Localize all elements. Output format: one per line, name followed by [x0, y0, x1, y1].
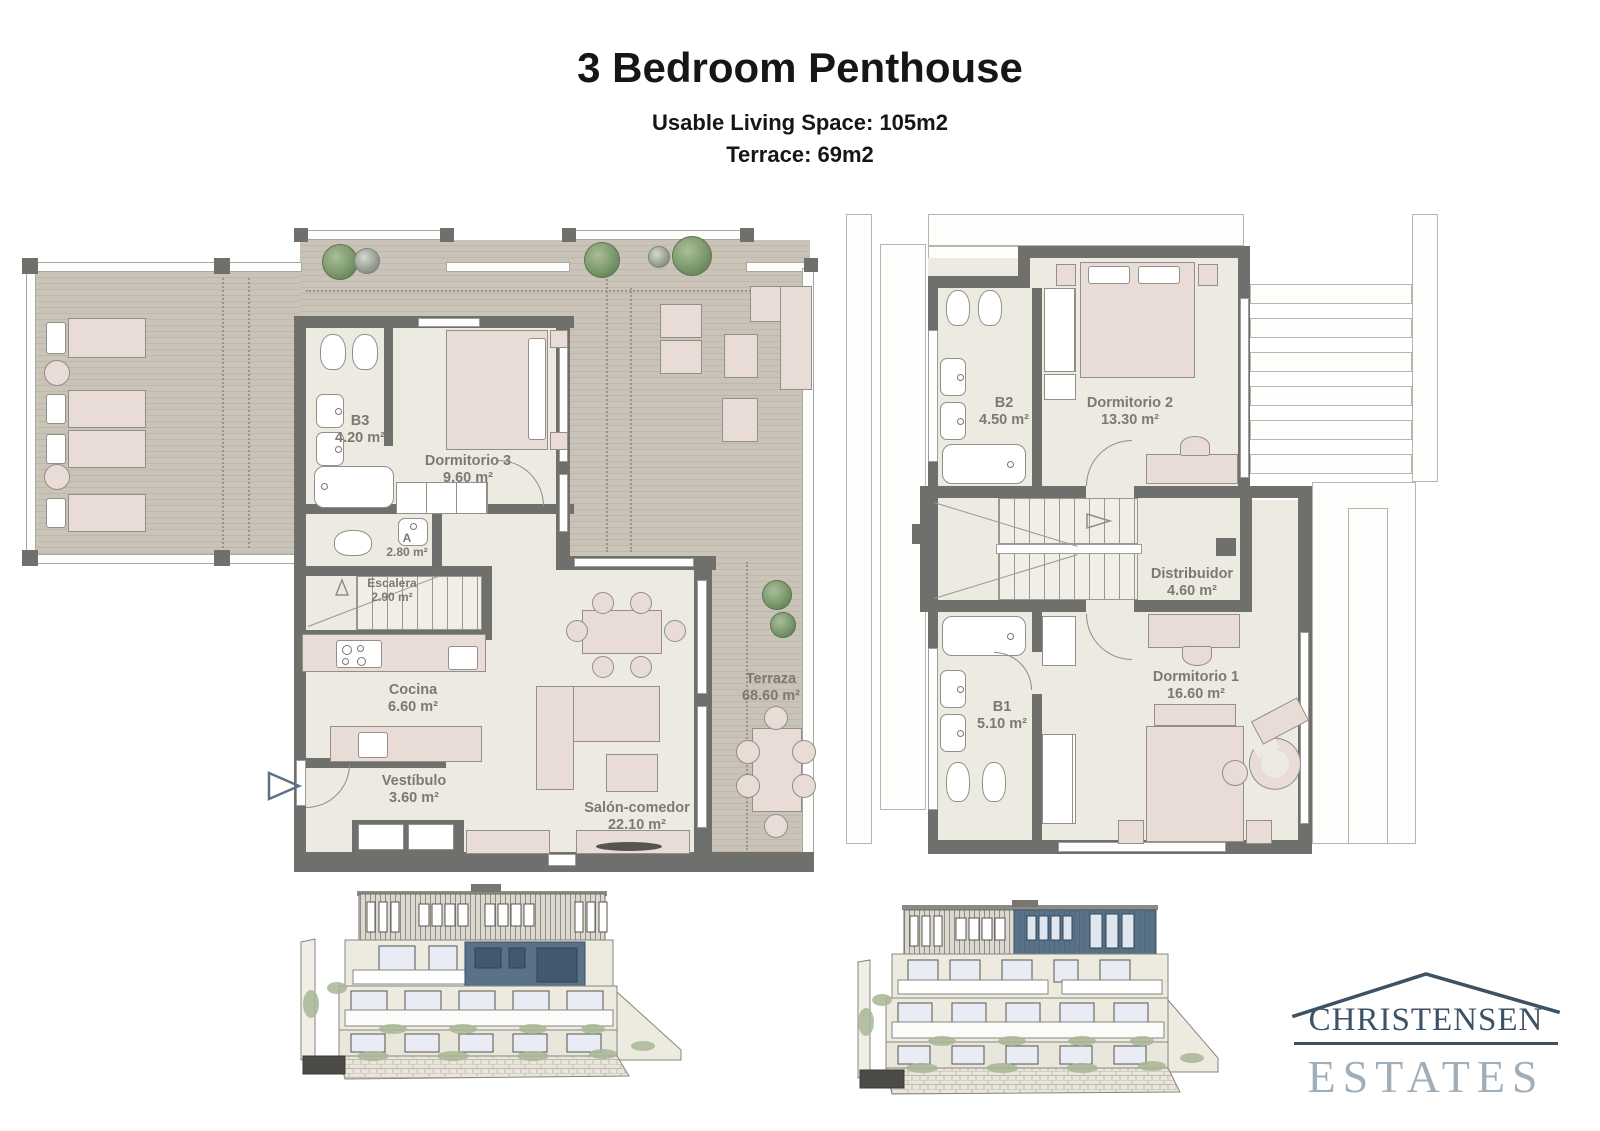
wall [920, 486, 1250, 498]
lounger-pillow [46, 394, 66, 424]
wall [482, 566, 492, 640]
room-label-b1: B15.10 m² [977, 699, 1027, 733]
sun-lounger [68, 494, 146, 532]
bathtub [942, 444, 1026, 484]
wall [920, 600, 1250, 612]
room-area: 2.90 m² [367, 590, 416, 604]
room-area: 4.60 m² [1151, 583, 1233, 600]
room-label-cocina: Cocina6.60 m² [388, 682, 438, 716]
wall [1032, 420, 1042, 486]
wall [1298, 486, 1312, 612]
wall [1018, 246, 1250, 258]
lounger-pillow [46, 434, 66, 464]
desk-chair [1180, 436, 1210, 456]
hob [336, 640, 382, 668]
deck-joint-line [630, 288, 632, 552]
room-area: 9.60 m² [425, 470, 511, 487]
outdoor-ottoman [722, 398, 758, 442]
bidet [352, 334, 378, 370]
window [697, 580, 707, 694]
bathtub [314, 466, 394, 508]
plant [648, 246, 670, 268]
wall [294, 852, 716, 872]
room-area: 6.60 m² [388, 699, 438, 716]
bidet [982, 762, 1006, 802]
balustrade [26, 262, 302, 272]
window [559, 474, 568, 532]
wall [294, 566, 492, 576]
nightstand [1198, 264, 1218, 286]
room-name: Vestíbulo [382, 773, 446, 790]
window [418, 318, 480, 327]
stair-landing [996, 544, 1142, 554]
deck-joint-line [746, 562, 748, 850]
door-opening [1032, 652, 1042, 694]
sink [940, 402, 966, 440]
side-table [1222, 760, 1248, 786]
chimney [1216, 538, 1236, 556]
nightstand [1118, 820, 1144, 844]
wall [706, 852, 814, 872]
balustrade [446, 262, 570, 272]
room-name: Dormitorio 2 [1087, 395, 1173, 412]
sun-lounger [68, 430, 146, 468]
pillow [528, 338, 546, 440]
pergola-slat [1250, 352, 1412, 372]
balcony-rail [353, 970, 473, 984]
post [804, 258, 818, 272]
post [214, 258, 230, 274]
sink [940, 670, 966, 708]
dining-chair [566, 620, 588, 642]
outdoor-chair [736, 740, 760, 764]
left-elevation [293, 884, 683, 1080]
bidet [978, 290, 1002, 326]
balcony-rail [898, 980, 1048, 994]
deck-joint-line [306, 290, 802, 292]
wall [1032, 288, 1042, 420]
balcony-rail [1062, 980, 1162, 994]
entrance-arrow-icon [266, 770, 302, 802]
deck-joint-line [248, 278, 250, 548]
window [697, 706, 707, 828]
pergola-slat [1250, 454, 1412, 474]
stairs [998, 498, 1138, 544]
toilet [320, 334, 346, 370]
sun-lounger [68, 390, 146, 428]
pergola-slat [1250, 420, 1412, 440]
window [1300, 632, 1309, 824]
wardrobe [1044, 374, 1076, 400]
pergola-slat [1250, 318, 1412, 338]
balustrade [568, 230, 748, 240]
chimney [912, 524, 938, 544]
desk [1146, 454, 1238, 484]
room-label-escalera: Escalera2.90 m² [367, 576, 416, 604]
subtitle-terrace: Terrace: 69m2 [0, 142, 1600, 168]
coffee-table [606, 754, 658, 792]
door-opening [1086, 486, 1134, 498]
side-table [44, 464, 70, 490]
room-name: Distribuidor [1151, 566, 1233, 583]
outdoor-chair [736, 774, 760, 798]
desk-chair [1182, 646, 1212, 666]
nightstand [1246, 820, 1272, 844]
post [562, 228, 576, 242]
plant [762, 580, 792, 610]
kitchen-island [330, 726, 482, 762]
room-name: B2 [979, 395, 1029, 412]
stair-arrow-icon [334, 578, 350, 598]
kitchen-appliance [448, 646, 478, 670]
window [928, 648, 938, 810]
post [214, 550, 230, 566]
outdoor-dining-table [752, 728, 802, 812]
dining-chair [664, 620, 686, 642]
window [1240, 298, 1249, 478]
island-sink [358, 732, 388, 758]
chimney [1012, 900, 1038, 907]
wall [1032, 612, 1042, 842]
plant [354, 248, 380, 274]
chimney [471, 884, 501, 892]
wall [920, 486, 930, 612]
wardrobe [1042, 616, 1076, 666]
floorplan-page: 3 Bedroom Penthouse Usable Living Space:… [0, 0, 1600, 1131]
room-name: A [386, 531, 427, 545]
pergola-slat [1250, 386, 1412, 406]
closet [408, 824, 454, 850]
garage-door [860, 1070, 904, 1088]
plant [770, 612, 796, 638]
dining-chair [592, 592, 614, 614]
post [740, 228, 754, 242]
room-area: 2.80 m² [386, 545, 427, 559]
lounger-pillow [46, 498, 66, 528]
headboard [1154, 704, 1236, 726]
outdoor-lounger [660, 304, 702, 338]
logo-line2: ESTATES [1290, 1050, 1562, 1103]
room-name: Escalera [367, 576, 416, 590]
room-name: Dormitorio 1 [1153, 669, 1239, 686]
dining-chair [630, 656, 652, 678]
wall [1240, 486, 1252, 612]
balcony-rail [892, 1022, 1164, 1038]
garage-door [303, 1056, 345, 1074]
deck-joint-line [222, 278, 224, 548]
sink [940, 358, 966, 396]
page-title: 3 Bedroom Penthouse [0, 44, 1600, 92]
outdoor-sofa [780, 286, 812, 390]
balcony-rail [345, 1010, 613, 1026]
room-label-terraza: Terraza68.60 m² [742, 671, 800, 705]
room-area: 3.60 m² [382, 790, 446, 807]
dining-chair [630, 592, 652, 614]
post [768, 852, 788, 872]
logo-line1: CHRISTENSEN [1290, 1002, 1562, 1039]
room-area: 4.20 m² [335, 430, 385, 447]
room-name: Dormitorio 3 [425, 453, 511, 470]
room-label-dorm1: Dormitorio 116.60 m² [1153, 669, 1239, 703]
room-name: Salón-comedor [584, 800, 690, 817]
subtitle-living-space: Usable Living Space: 105m2 [0, 110, 1600, 136]
room-name: Cocina [388, 682, 438, 699]
roof-outline [928, 214, 1244, 246]
balustrade [298, 230, 446, 240]
pergola-slat [1250, 284, 1412, 304]
toilet [334, 530, 372, 556]
outdoor-chair [764, 814, 788, 838]
room-label-b3: B34.20 m² [335, 413, 385, 447]
dining-chair [592, 656, 614, 678]
room-area: 22.10 m² [584, 817, 690, 834]
room-area: 5.10 m² [977, 716, 1027, 733]
nightstand [1056, 264, 1076, 286]
balustrade [26, 554, 302, 564]
nightstand [550, 330, 568, 348]
side-table [44, 360, 70, 386]
right-elevation [852, 900, 1222, 1096]
roof-outline [1412, 214, 1438, 482]
tv-icon [596, 842, 662, 851]
wall [928, 276, 1028, 288]
roof-outline [1348, 508, 1388, 844]
room-label-b2: B24.50 m² [979, 395, 1029, 429]
room-label-dorm3: Dormitorio 39.60 m² [425, 453, 511, 487]
outdoor-chair [792, 774, 816, 798]
logo-underline [1294, 1042, 1558, 1045]
toilet [946, 762, 970, 802]
outdoor-table [724, 334, 758, 378]
bathtub [942, 616, 1026, 656]
window [928, 330, 938, 462]
wardrobe [1042, 734, 1076, 824]
room-label-vestibulo: Vestíbulo3.60 m² [382, 773, 446, 807]
room-area: 16.60 m² [1153, 686, 1239, 703]
closet [358, 824, 404, 850]
room-area: 4.50 m² [979, 412, 1029, 429]
room-label-dorm2: Dormitorio 213.30 m² [1087, 395, 1173, 429]
outdoor-chair [764, 706, 788, 730]
roof-outline [846, 214, 872, 844]
room-label-salon: Salón-comedor22.10 m² [584, 800, 690, 834]
pillow [1138, 266, 1180, 284]
post [22, 550, 38, 566]
window [548, 854, 576, 866]
toilet [946, 290, 970, 326]
brand-logo: CHRISTENSEN ESTATES [1290, 968, 1562, 1100]
sun-lounger [68, 318, 146, 358]
room-name: B1 [977, 699, 1027, 716]
desk [1148, 614, 1240, 648]
room-label-distribuidor: Distribuidor4.60 m² [1151, 566, 1233, 600]
plant [584, 242, 620, 278]
balustrade [26, 262, 36, 564]
pillow [1088, 266, 1130, 284]
room-area: 68.60 m² [742, 688, 800, 705]
plant [322, 244, 358, 280]
dining-table [582, 610, 662, 654]
room-area: 13.30 m² [1087, 412, 1173, 429]
post [294, 228, 308, 242]
outdoor-lounger [660, 340, 702, 374]
nightstand [550, 432, 568, 450]
outdoor-chair [792, 740, 816, 764]
sofa [536, 686, 574, 790]
room-name: B3 [335, 413, 385, 430]
wall [384, 328, 393, 446]
room-label-aseo: A2.80 m² [386, 531, 427, 559]
room-name: Terraza [742, 671, 800, 688]
plant [672, 236, 712, 276]
sink [940, 714, 966, 752]
deck-joint-line [606, 252, 608, 552]
glass-door [574, 558, 694, 567]
wardrobe [1044, 288, 1076, 372]
post [440, 228, 454, 242]
door-opening [1086, 600, 1134, 612]
stairs [998, 552, 1138, 600]
tv-bench [466, 830, 550, 854]
post [22, 258, 38, 274]
lounger-pillow [46, 322, 66, 354]
stair-arrow-icon [1085, 512, 1113, 530]
